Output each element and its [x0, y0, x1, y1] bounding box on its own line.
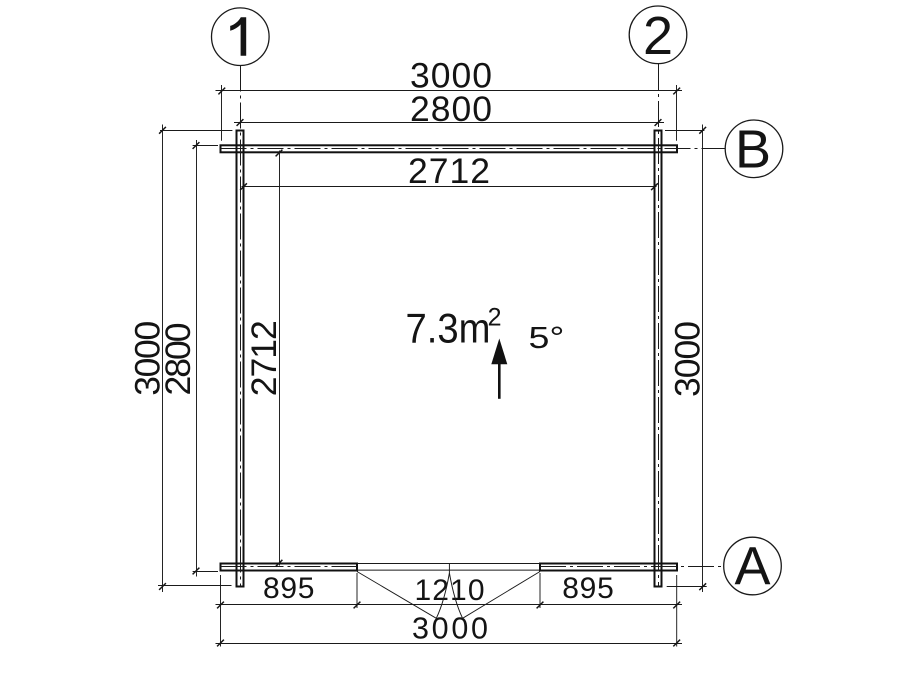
svg-text:2712: 2712 [244, 320, 284, 396]
svg-text:2: 2 [643, 6, 673, 66]
svg-text:3000: 3000 [667, 321, 707, 397]
svg-text:2800: 2800 [410, 89, 492, 129]
svg-text:895: 895 [263, 572, 315, 605]
svg-text:A: A [734, 537, 770, 597]
svg-text:7.3m: 7.3m [406, 305, 491, 352]
svg-text:895: 895 [562, 572, 614, 605]
svg-text:2712: 2712 [408, 151, 490, 191]
svg-text:2: 2 [488, 304, 502, 332]
svg-text:1210: 1210 [415, 574, 485, 607]
svg-text:B: B [735, 119, 771, 179]
svg-text:2800: 2800 [158, 323, 198, 396]
svg-text:5°: 5° [529, 321, 565, 355]
